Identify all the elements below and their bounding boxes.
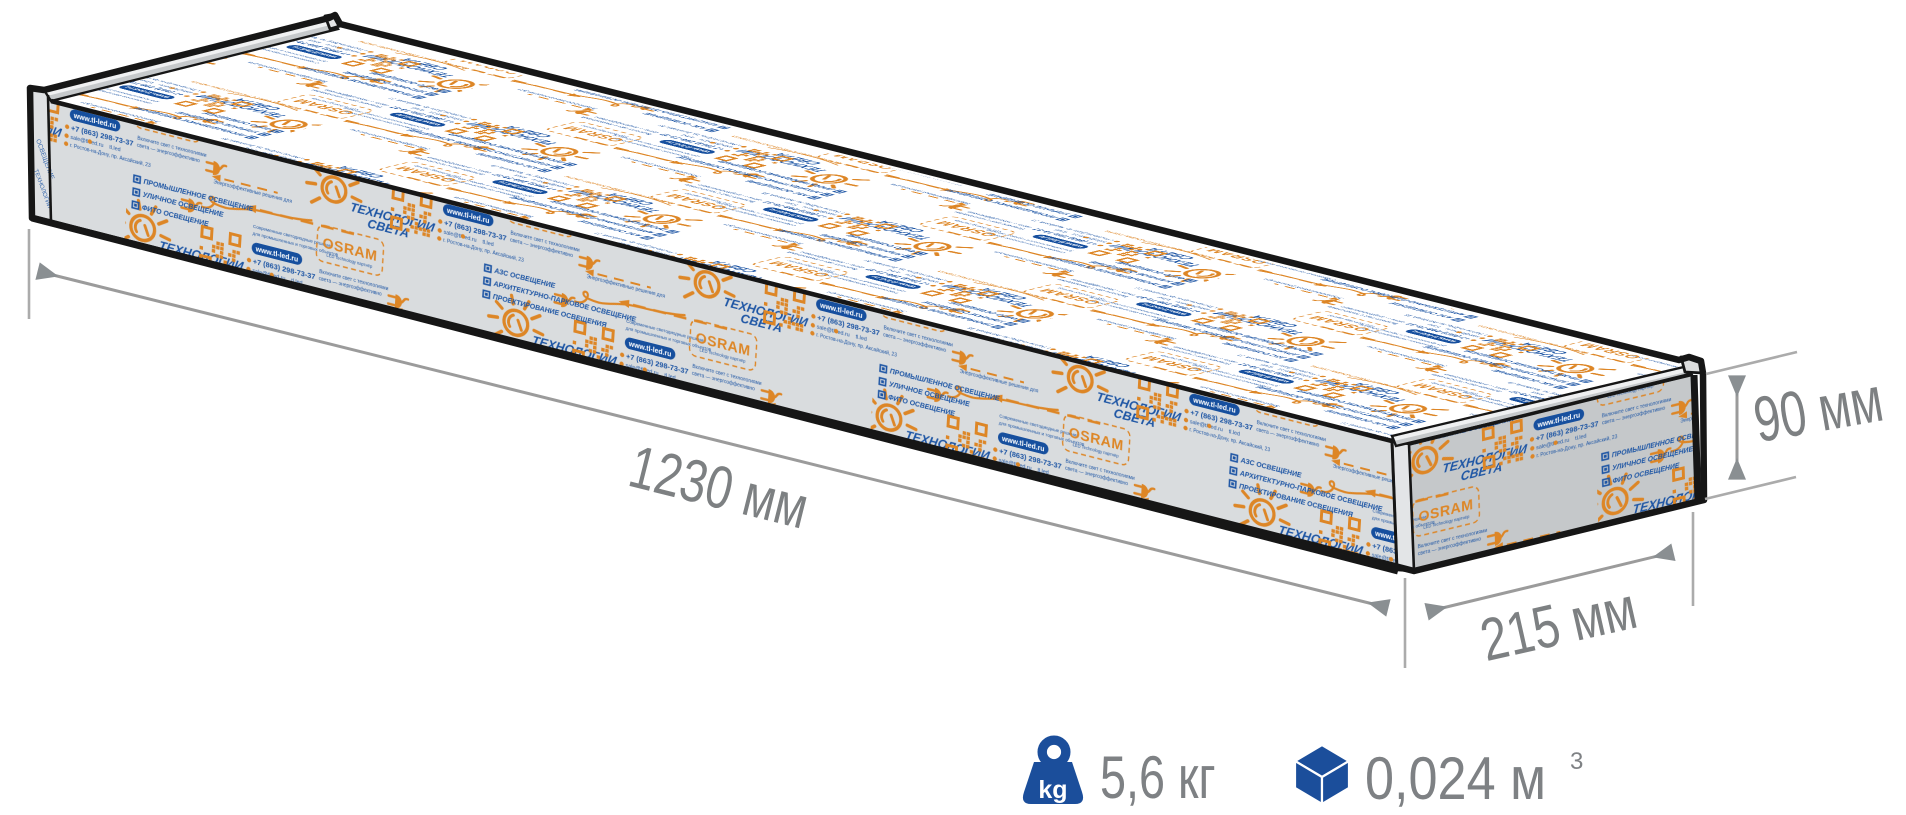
svg-text:5,6 кг: 5,6 кг — [1100, 744, 1216, 811]
svg-text:3: 3 — [1570, 748, 1583, 775]
svg-text:1230 мм: 1230 мм — [623, 433, 815, 542]
svg-text:0,024 м: 0,024 м — [1365, 745, 1546, 812]
svg-text:kg: kg — [1038, 776, 1067, 804]
svg-text:90 мм: 90 мм — [1748, 362, 1888, 455]
svg-text:215 мм: 215 мм — [1475, 575, 1643, 675]
